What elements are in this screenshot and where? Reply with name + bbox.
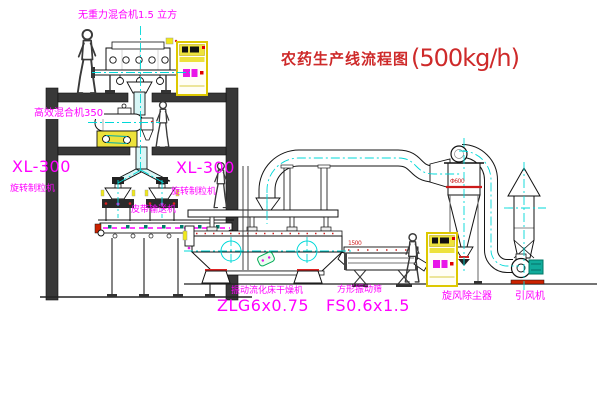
flow-diagram-canvas: 无重力混合机1.5 立方 农药生产线流程图 (500kg/h) 高效混合机350… — [0, 0, 600, 403]
label-granulator-left-name: 旋转制粒机 — [10, 185, 55, 194]
mixer2-discharge-pipe — [136, 147, 147, 171]
label-dryer-name: 振动流化床干燥机 — [231, 287, 303, 296]
label-sieve-name: 方形振动筛 — [337, 286, 382, 295]
person-figure-1 — [78, 30, 96, 93]
label-sieve-dimension: 1500 — [348, 241, 361, 247]
dryer-feed-duct — [267, 158, 452, 210]
label-sieve-model: FS0.6x1.5 — [326, 298, 410, 314]
dryer-feed-funnel — [256, 198, 280, 210]
title-capacity: (500kg/h) — [411, 44, 519, 72]
label-high-efficiency-mixer: 高效混合机350 — [33, 109, 104, 119]
diagram-title: 农药生产线流程图 (500kg/h) — [281, 44, 519, 72]
label-gravity-free-mixer: 无重力混合机1.5 立方 — [78, 11, 177, 21]
control-cabinet-2 — [427, 233, 457, 286]
control-cabinet-1 — [177, 42, 207, 95]
fan-motor — [529, 260, 543, 274]
label-belt-conveyor: 皮带输送机 — [131, 206, 176, 215]
label-dryer-model: ZLG6x0.75 — [217, 298, 309, 314]
title-chinese: 农药生产线流程图 — [281, 48, 409, 69]
label-fan: 引风机 — [515, 292, 545, 302]
person-figure-2 — [156, 102, 169, 147]
label-cyclone-dimension: Φ600 — [450, 179, 464, 185]
label-granulator-left-model: XL-300 — [12, 159, 71, 175]
label-granulator-right-model: XL-300 — [176, 160, 235, 176]
mixer-discharge-pipe — [134, 92, 145, 115]
label-cyclone: 旋风除尘器 — [442, 292, 492, 302]
gravity-free-mixer — [91, 38, 185, 115]
label-granulator-right-name: 旋转制粒机 — [171, 188, 216, 197]
fan-base — [511, 280, 544, 284]
